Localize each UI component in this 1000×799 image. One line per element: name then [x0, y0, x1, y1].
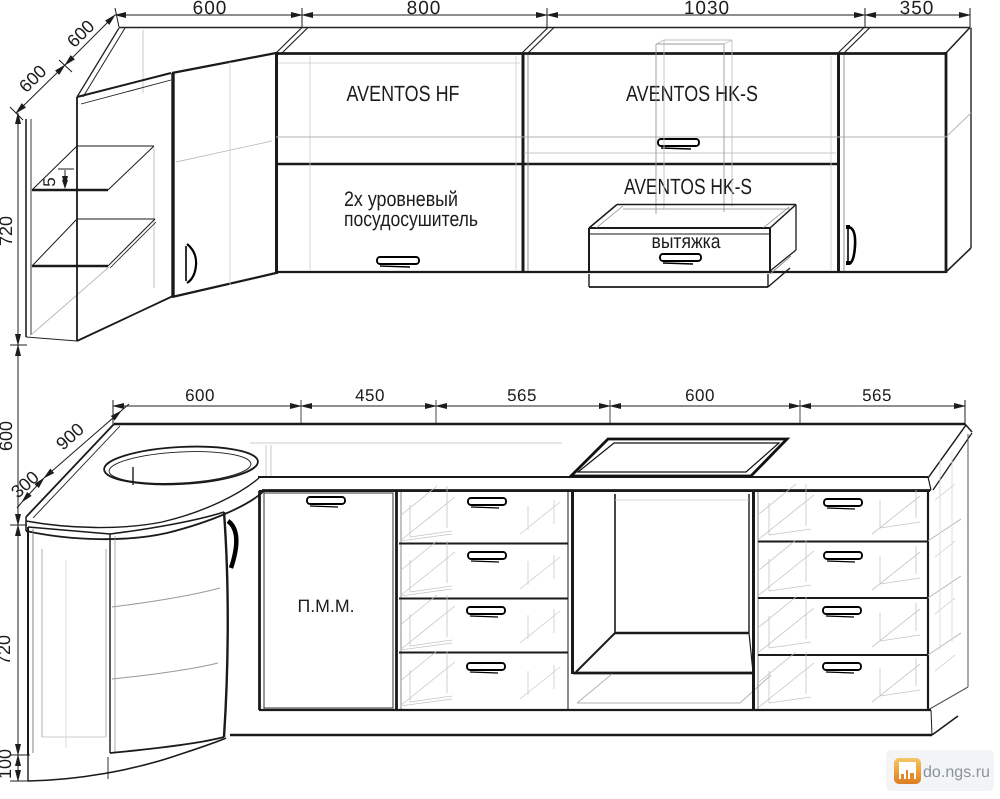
- svg-text:вытяжка: вытяжка: [652, 231, 722, 253]
- svg-text:600: 600: [15, 61, 50, 96]
- svg-text:AVENTOS HK-S: AVENTOS HK-S: [626, 81, 758, 106]
- svg-text:600: 600: [63, 16, 98, 51]
- svg-text:5: 5: [40, 177, 59, 186]
- svg-text:do.ngs.ru: do.ngs.ru: [923, 764, 990, 781]
- svg-text:600: 600: [193, 0, 228, 19]
- svg-text:600: 600: [185, 386, 215, 405]
- svg-text:800: 800: [407, 0, 442, 19]
- svg-text:1030: 1030: [684, 0, 730, 19]
- svg-text:600: 600: [685, 386, 715, 405]
- svg-text:AVENTOS HK-S: AVENTOS HK-S: [624, 174, 752, 199]
- svg-text:П.М.М.: П.М.М.: [298, 596, 355, 616]
- svg-text:720: 720: [0, 216, 16, 246]
- svg-text:AVENTOS HF: AVENTOS HF: [347, 81, 460, 106]
- svg-text:720: 720: [0, 635, 14, 665]
- svg-text:450: 450: [355, 386, 385, 405]
- svg-text:565: 565: [862, 386, 892, 405]
- svg-text:350: 350: [900, 0, 935, 19]
- svg-text:100: 100: [0, 749, 15, 779]
- svg-text:900: 900: [52, 419, 88, 454]
- svg-text:300: 300: [7, 467, 43, 502]
- svg-text:565: 565: [507, 386, 537, 405]
- svg-text:600: 600: [0, 421, 16, 451]
- svg-text:посудосушитель: посудосушитель: [344, 208, 478, 231]
